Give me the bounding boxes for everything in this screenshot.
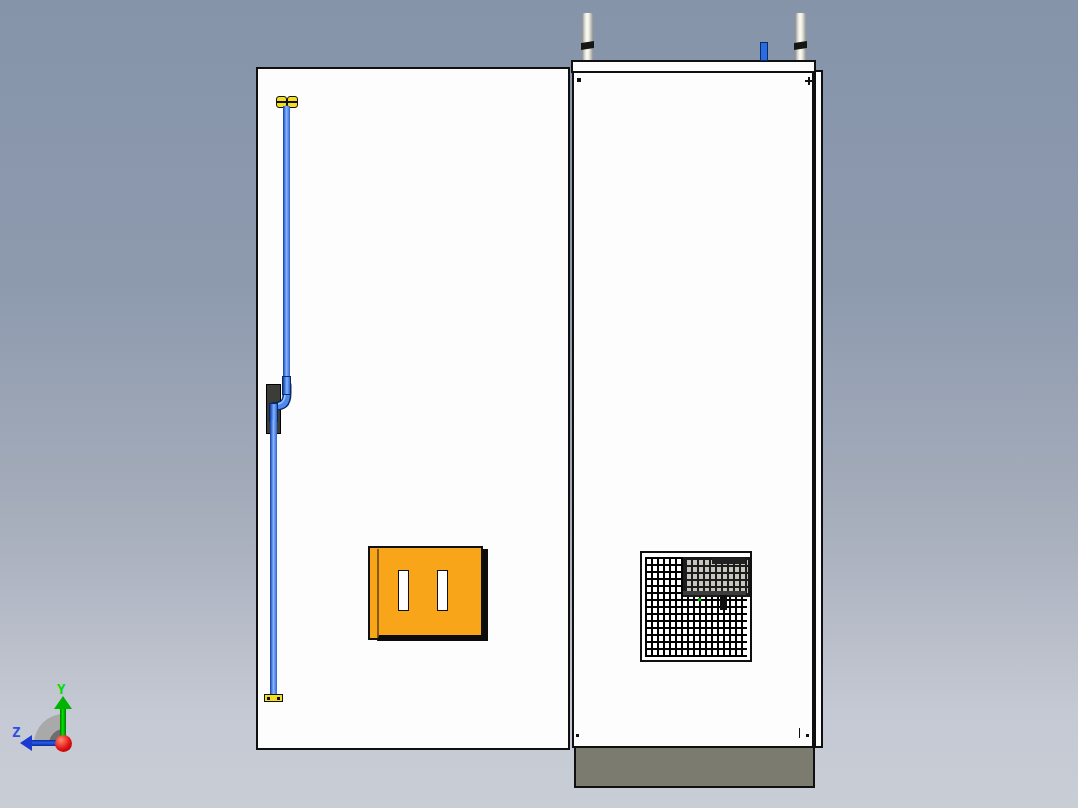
lifting-eyebolt-right[interactable]	[795, 13, 806, 61]
vent-grille[interactable]	[640, 551, 752, 662]
socket-slot-left	[398, 570, 409, 611]
cabinet-plinth-base[interactable]	[574, 746, 815, 788]
vent-insert-dark-band	[712, 558, 745, 564]
vent-mesh-grid	[645, 557, 747, 657]
y-axis-label: Y	[57, 681, 65, 697]
x-axis-origin-ball[interactable]	[55, 735, 72, 752]
fitting-notch-left	[267, 697, 270, 700]
eyebolt-collar	[794, 41, 807, 50]
pipe-upper-segment[interactable]	[283, 106, 290, 394]
orientation-triad[interactable]: Y Z	[0, 675, 100, 765]
fitting-notch-right	[277, 697, 280, 700]
orange-socket-housing[interactable]	[368, 546, 483, 640]
pipe-bottom-fitting[interactable]	[264, 694, 283, 702]
y-axis-arrowhead[interactable]	[54, 696, 72, 709]
socket-slot-right	[437, 570, 448, 611]
fitting-slot-line	[277, 101, 297, 103]
pipe-coupling-upper[interactable]	[282, 376, 291, 395]
fastener-mark-bottom-left	[576, 734, 579, 737]
socket-recess-face	[377, 549, 488, 641]
vent-insert-bottom-rail	[683, 591, 746, 595]
cabinet-top-cap[interactable]	[571, 60, 816, 73]
cabinet-side-return-edge[interactable]	[814, 70, 823, 748]
z-axis-arrowhead[interactable]	[20, 735, 32, 751]
fastener-cross-mark	[808, 77, 810, 85]
fastener-mark-top-left	[577, 78, 581, 82]
eyebolt-collar	[581, 41, 594, 50]
vent-latch-tab	[720, 595, 727, 610]
lifting-eyebolt-left[interactable]	[582, 13, 593, 61]
blue-clip[interactable]	[760, 42, 768, 61]
vent-indicator-dot	[698, 598, 701, 601]
fastener-mark-bottom-right	[806, 734, 809, 737]
cad-viewport: { "app": { "type": "cad-3d-viewport", "v…	[0, 0, 1078, 808]
fastener-mark-bottom-line	[799, 728, 800, 738]
z-axis-label: Z	[12, 724, 20, 740]
pipe-lower-segment[interactable]	[270, 420, 277, 696]
